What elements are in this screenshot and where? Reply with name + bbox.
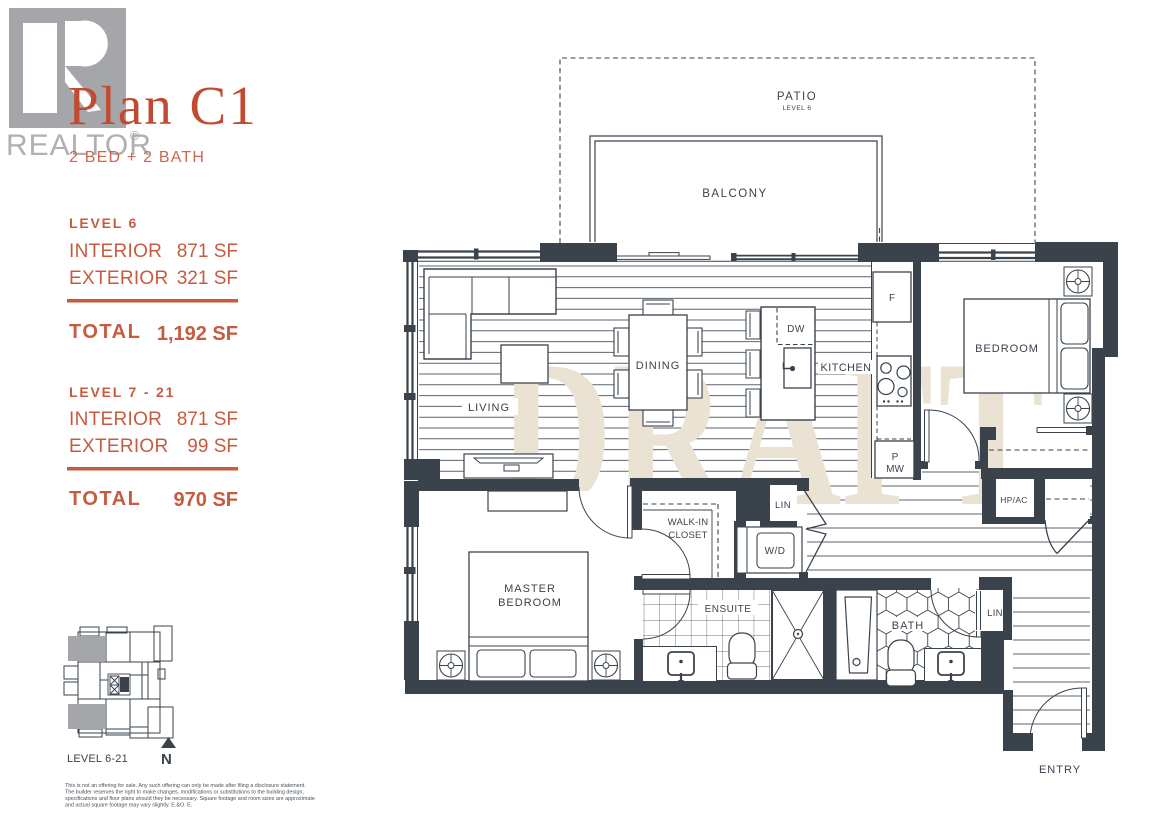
svg-text:871 SF: 871 SF (177, 241, 238, 262)
svg-text:DW: DW (787, 324, 805, 335)
svg-text:DINING: DINING (636, 360, 681, 372)
svg-text:EXTERIOR: EXTERIOR (69, 268, 169, 289)
svg-text:BATH: BATH (892, 620, 925, 632)
svg-text:LIN: LIN (775, 500, 791, 511)
svg-text:Plan C1: Plan C1 (68, 75, 258, 136)
svg-text:BEDROOM: BEDROOM (498, 597, 562, 609)
svg-text:N: N (161, 751, 172, 768)
svg-text:TOTAL: TOTAL (69, 488, 141, 510)
svg-text:LIN: LIN (987, 608, 1003, 619)
svg-text:LIVING: LIVING (468, 402, 510, 414)
svg-text:MW: MW (886, 464, 904, 475)
svg-text:EXTERIOR: EXTERIOR (69, 436, 169, 457)
svg-text:MASTER: MASTER (504, 583, 556, 595)
svg-text:INTERIOR: INTERIOR (69, 409, 162, 430)
svg-text:F: F (889, 293, 895, 304)
svg-text:ENSUITE: ENSUITE (705, 604, 752, 615)
svg-text:1,192 SF: 1,192 SF (157, 323, 238, 345)
svg-text:INTERIOR: INTERIOR (69, 241, 162, 262)
svg-text:and actual square footage may: and actual square footage may vary sligh… (65, 803, 192, 809)
svg-text:BEDROOM: BEDROOM (975, 343, 1039, 355)
svg-text:The builder reserves the right: The builder reserves the right to make c… (65, 790, 304, 796)
svg-text:HP/AC: HP/AC (1000, 495, 1027, 505)
svg-text:LEVEL 7 - 21: LEVEL 7 - 21 (69, 384, 175, 400)
svg-text:2 BED + 2 BATH: 2 BED + 2 BATH (69, 149, 205, 166)
svg-text:LEVEL 6: LEVEL 6 (69, 215, 138, 231)
svg-text:970 SF: 970 SF (174, 489, 238, 511)
svg-text:W/D: W/D (765, 546, 786, 557)
svg-text:CLOSET: CLOSET (668, 530, 707, 541)
svg-text:PATIO: PATIO (777, 91, 817, 103)
svg-text:This is not an offering for sa: This is not an offering for sale. Any su… (65, 783, 306, 789)
svg-text:LEVEL 6: LEVEL 6 (783, 105, 812, 112)
svg-text:WALK-IN: WALK-IN (668, 517, 709, 528)
svg-text:KITCHEN: KITCHEN (821, 362, 872, 374)
svg-text:99 SF: 99 SF (187, 436, 238, 457)
svg-text:specifications and floor plans: specifications and floor plans should th… (65, 796, 315, 802)
svg-text:P: P (892, 452, 899, 463)
svg-text:321 SF: 321 SF (177, 268, 238, 289)
svg-text:BALCONY: BALCONY (702, 188, 767, 200)
svg-text:LEVEL 6-21: LEVEL 6-21 (67, 753, 128, 765)
svg-text:ENTRY: ENTRY (1039, 764, 1081, 776)
svg-text:871 SF: 871 SF (177, 409, 238, 430)
svg-text:TOTAL: TOTAL (69, 321, 141, 343)
